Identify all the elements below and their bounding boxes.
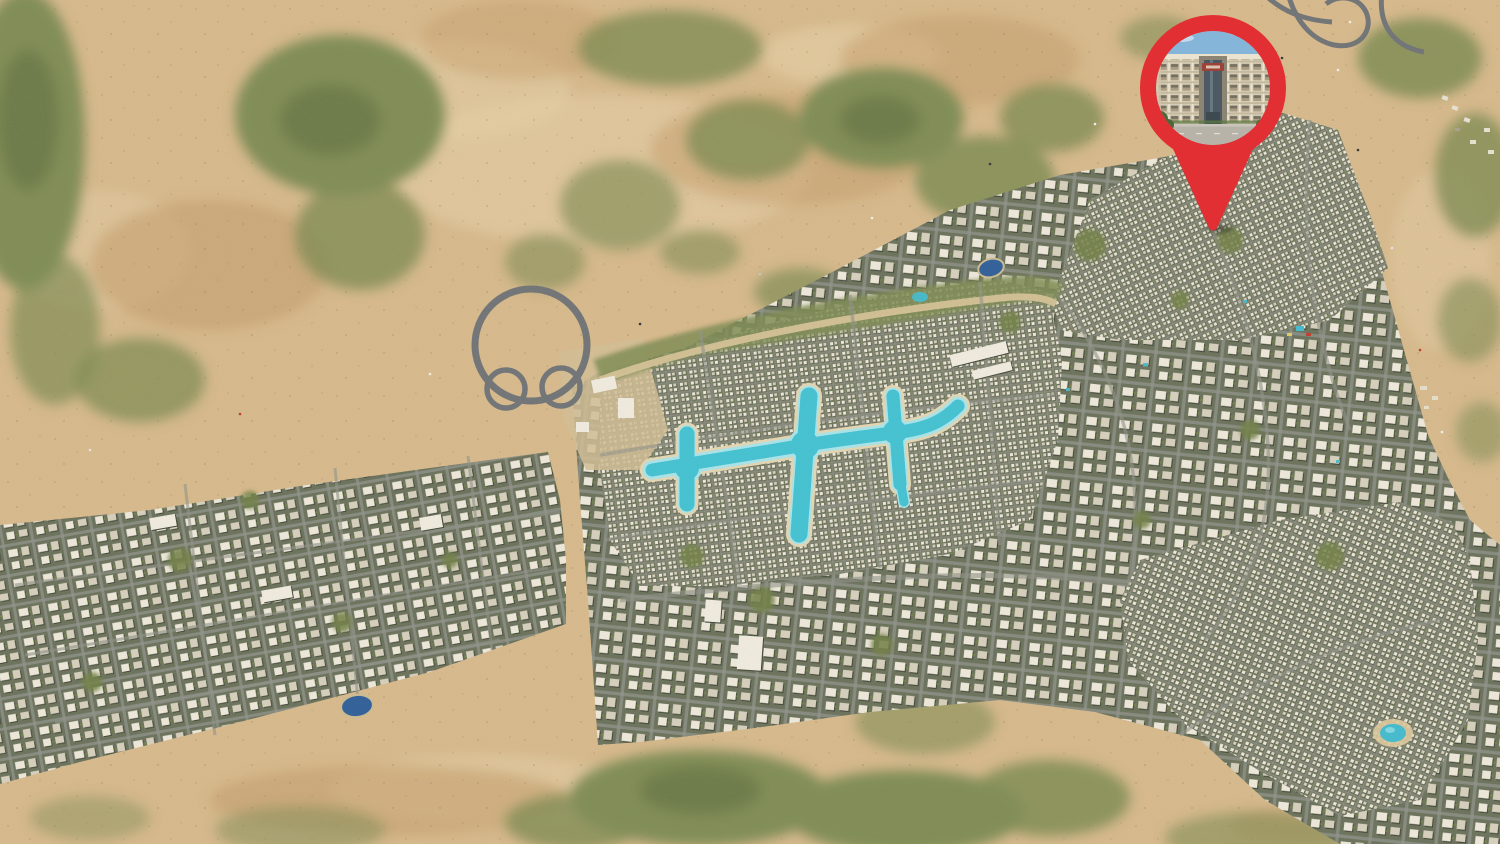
photo-grain-overlay xyxy=(0,0,1500,844)
aerial-masterplan-map xyxy=(0,0,1500,844)
